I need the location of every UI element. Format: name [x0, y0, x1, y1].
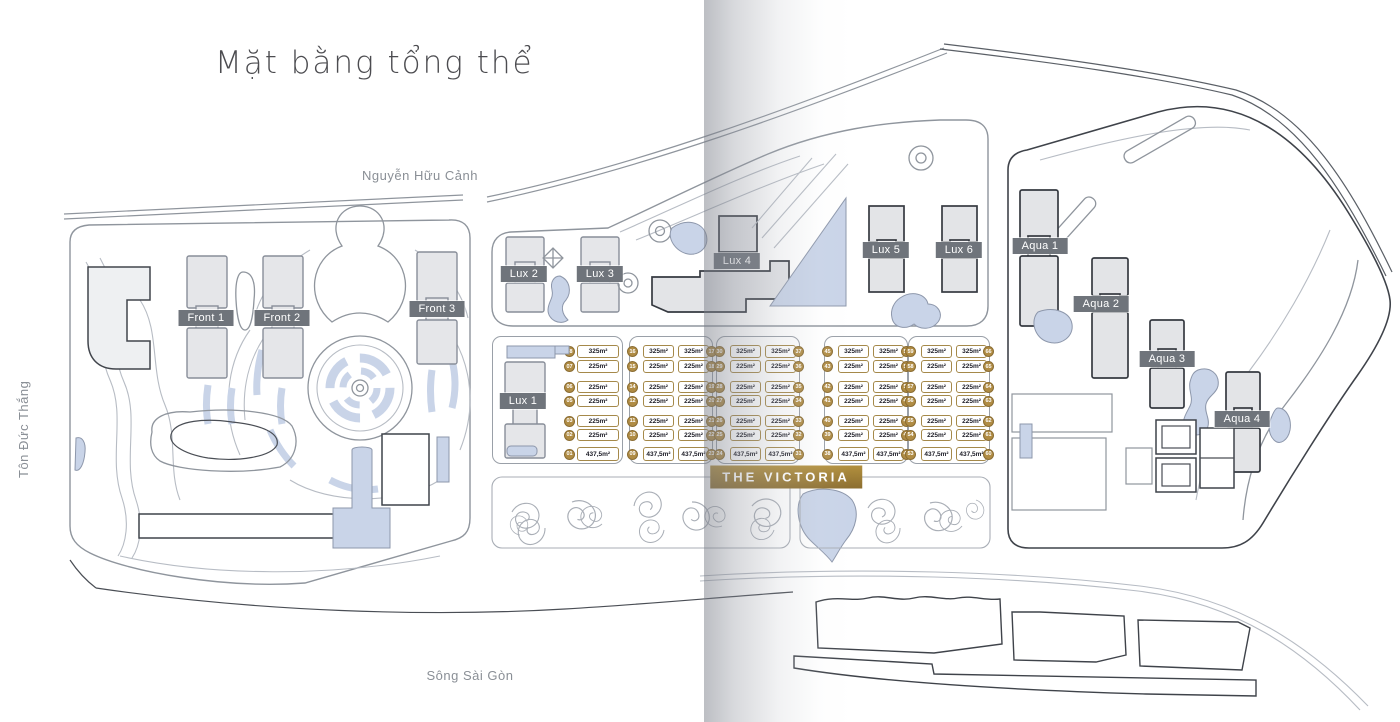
street-label-ton-duc-thang: Tôn Đức Thắng	[16, 362, 31, 478]
villa-number-badge: 38	[822, 449, 833, 460]
villa-unit: 225m²	[921, 415, 952, 427]
villa-number-badge: 37	[793, 346, 804, 357]
villa-number-badge: 62	[983, 416, 994, 427]
lux-parcel	[492, 120, 988, 328]
villa-unit: 225m²	[873, 395, 904, 407]
villa-number-badge: 32	[793, 430, 804, 441]
villa-number-badge: 11	[627, 416, 638, 427]
badge-lux-5: Lux 5	[863, 242, 909, 258]
villa-unit: 225m²	[838, 415, 869, 427]
villa-unit: 225m²	[838, 429, 869, 441]
river-label-song-sai-gon: Sông Sài Gòn	[410, 668, 530, 683]
villa-block-4: 325m²45225m²43225m²42225m²41225m²40225m²…	[824, 336, 908, 464]
villa-number-badge: 60	[983, 449, 994, 460]
villa-unit: 225m²	[765, 395, 796, 407]
aqua-1-tower	[1020, 190, 1058, 326]
villa-unit: 225m²	[873, 360, 904, 373]
site-plan-page: Mặt bằng tổng thể Nguyễn Hữu Cảnh Tôn Đứ…	[0, 0, 1400, 722]
villa-number-badge: 43	[822, 361, 833, 372]
villa-number-badge: 61	[983, 430, 994, 441]
villa-unit: 325m²	[730, 345, 761, 358]
villa-number-badge: 33	[793, 416, 804, 427]
villa-number-badge: 34	[793, 396, 804, 407]
villa-block-2: 325m²16225m²15225m²14225m²12225m²11225m²…	[629, 336, 713, 464]
villa-number-badge: 09	[627, 449, 638, 460]
badge-lux-1: Lux 1	[500, 393, 546, 409]
villa-unit: 225m²	[873, 429, 904, 441]
villa-unit: 225m²	[873, 381, 904, 393]
villa-unit: 325m²	[921, 345, 952, 358]
the-victoria-badge: THE VICTORIA	[710, 466, 862, 489]
villa-number-badge: 28	[714, 382, 725, 393]
villa-number-badge: 15	[627, 361, 638, 372]
villa-unit: 225m²	[765, 429, 796, 441]
villa-unit: 225m²	[838, 381, 869, 393]
villa-unit: 437,5m²	[643, 447, 674, 461]
villa-unit: 225m²	[838, 395, 869, 407]
badge-lux-6: Lux 6	[936, 242, 982, 258]
villa-unit: 437,5m²	[921, 447, 952, 461]
villa-number-badge: 64	[983, 382, 994, 393]
villa-unit: 325m²	[765, 345, 796, 358]
villa-number-badge: 54	[905, 430, 916, 441]
villa-unit: 225m²	[765, 381, 796, 393]
badge-front-2: Front 2	[255, 310, 310, 326]
villa-number-badge: 26	[714, 416, 725, 427]
villa-number-badge: 59	[905, 346, 916, 357]
villa-number-badge: 41	[822, 396, 833, 407]
villa-unit: 225m²	[678, 395, 709, 407]
street-label-nguyen-huu-canh: Nguyễn Hữu Cảnh	[340, 168, 500, 183]
villa-unit: 325m²	[873, 345, 904, 358]
villa-block-5: 325m²59225m²58225m²57225m²56225m²55225m²…	[908, 336, 990, 464]
villa-number-badge: 56	[905, 396, 916, 407]
villa-unit: 225m²	[678, 415, 709, 427]
badge-aqua-2: Aqua 2	[1074, 296, 1129, 312]
villa-number-badge: 40	[822, 416, 833, 427]
villa-number-badge: 12	[627, 396, 638, 407]
villa-unit: 437,5m²	[678, 447, 709, 461]
villa-block-3: 325m²30225m²29225m²28225m²27225m²26225m²…	[716, 336, 800, 464]
villa-unit: 325m²	[643, 345, 674, 358]
villa-unit: 225m²	[643, 429, 674, 441]
villa-number-badge: 63	[983, 396, 994, 407]
villa-number-badge: 35	[793, 382, 804, 393]
villa-unit: 325m²	[838, 345, 869, 358]
badge-front-3: Front 3	[410, 301, 465, 317]
villa-unit: 225m²	[873, 415, 904, 427]
villa-unit: 225m²	[730, 415, 761, 427]
villa-number-badge: 31	[793, 449, 804, 460]
villa-number-badge: 45	[822, 346, 833, 357]
badge-front-1: Front 1	[179, 310, 234, 326]
villa-number-badge: 14	[627, 382, 638, 393]
villa-unit: 225m²	[921, 381, 952, 393]
villa-unit: 225m²	[765, 360, 796, 373]
villa-number-badge: 25	[714, 430, 725, 441]
villa-unit: 437,5m²	[730, 447, 761, 461]
front-parcel	[70, 206, 470, 584]
villa-number-badge: 65	[983, 361, 994, 372]
villa-unit: 225m²	[643, 415, 674, 427]
villa-number-badge: 36	[793, 361, 804, 372]
villa-unit: 225m²	[730, 429, 761, 441]
villa-unit: 225m²	[678, 381, 709, 393]
aqua-2-tower	[1092, 258, 1128, 378]
villa-number-badge: 42	[822, 382, 833, 393]
badge-aqua-3: Aqua 3	[1140, 351, 1195, 367]
villa-unit: 225m²	[643, 360, 674, 373]
villa-unit: 225m²	[678, 360, 709, 373]
villa-number-badge: 55	[905, 416, 916, 427]
villa-unit: 225m²	[678, 429, 709, 441]
villa-unit: 225m²	[838, 360, 869, 373]
villa-unit: 225m²	[730, 395, 761, 407]
badge-aqua-4: Aqua 4	[1215, 411, 1270, 427]
villa-number-badge: 10	[627, 430, 638, 441]
villa-number-badge: 30	[714, 346, 725, 357]
villa-number-badge: 27	[714, 396, 725, 407]
villa-unit: 225m²	[730, 381, 761, 393]
page-title: Mặt bằng tổng thể	[215, 45, 534, 81]
villa-number-badge: 53	[905, 449, 916, 460]
villa-number-badge: 24	[714, 449, 725, 460]
villa-unit: 225m²	[921, 429, 952, 441]
villa-unit: 437,5m²	[838, 447, 869, 461]
villa-unit: 225m²	[765, 415, 796, 427]
villa-number-badge: 57	[905, 382, 916, 393]
villa-number-badge: 39	[822, 430, 833, 441]
villa-unit: 225m²	[730, 360, 761, 373]
villa-unit: 225m²	[643, 395, 674, 407]
villa-number-badge: 66	[983, 346, 994, 357]
villa-number-badge: 16	[627, 346, 638, 357]
villa-number-badge: 29	[714, 361, 725, 372]
villa-unit: 225m²	[643, 381, 674, 393]
badge-aqua-1: Aqua 1	[1013, 238, 1068, 254]
villa-unit: 225m²	[921, 395, 952, 407]
villa-unit: 437,5m²	[873, 447, 904, 461]
central-pond	[798, 489, 856, 562]
aqua-parcel	[1008, 107, 1390, 548]
badge-lux-3: Lux 3	[577, 266, 623, 282]
villa-unit: 437,5m²	[765, 447, 796, 461]
villa-unit: 225m²	[921, 360, 952, 373]
villa-unit: 325m²	[678, 345, 709, 358]
badge-lux-2: Lux 2	[501, 266, 547, 282]
badge-lux-4: Lux 4	[714, 253, 760, 269]
villa-number-badge: 58	[905, 361, 916, 372]
